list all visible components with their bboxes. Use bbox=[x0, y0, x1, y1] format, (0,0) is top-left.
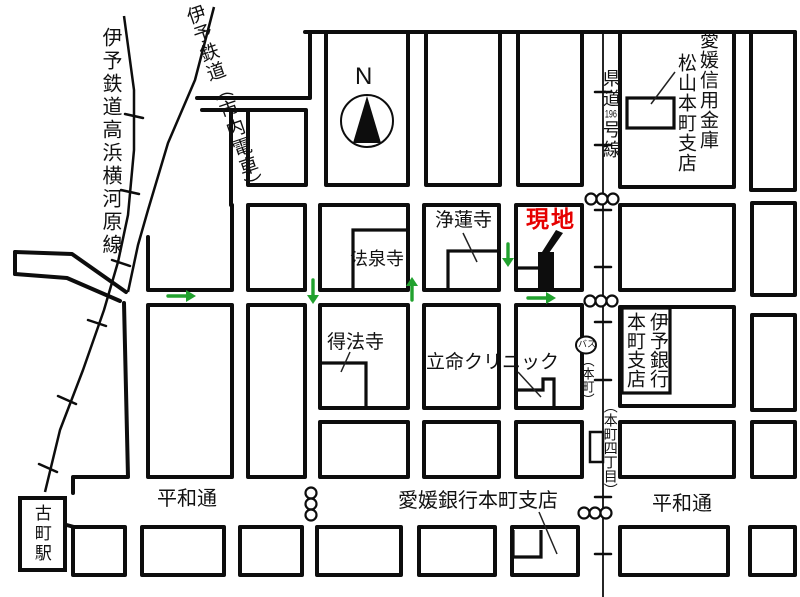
city-block bbox=[248, 205, 305, 290]
city-block bbox=[317, 527, 401, 575]
city-block bbox=[320, 205, 408, 290]
city-block bbox=[620, 527, 728, 575]
iyo-bank-label-line2: 本町支店 bbox=[624, 312, 644, 388]
city-block bbox=[751, 32, 795, 190]
ritsumei-clinic-label: 立命クリニック bbox=[426, 353, 559, 373]
west-road-upper-edge bbox=[15, 252, 126, 292]
city-block bbox=[752, 315, 795, 410]
green-arrow-down bbox=[307, 280, 319, 304]
route196-suffix: 号線 bbox=[601, 120, 621, 160]
route196-number: 196 bbox=[605, 109, 617, 120]
ehime-bank-label: 愛媛銀行本町支店 bbox=[398, 491, 558, 512]
green-arrow-down bbox=[502, 244, 514, 267]
signal-cluster-vertical bbox=[306, 488, 317, 521]
takahama-line-label: 伊予鉄道高浜横河原線 bbox=[99, 27, 120, 257]
compass-north-label: N bbox=[355, 64, 372, 89]
jorenji-label: 浄蓮寺 bbox=[435, 211, 492, 231]
city-block bbox=[73, 527, 125, 575]
heiwa-street-label-left: 平和通 bbox=[157, 489, 217, 510]
city-block bbox=[750, 527, 795, 575]
city-block bbox=[516, 422, 582, 477]
bus-stop-name-label: （本町） bbox=[580, 354, 594, 406]
heiwa-street-label-right: 平和通 bbox=[652, 494, 712, 515]
honmachi-4chome-label: （本町四丁目） bbox=[603, 399, 618, 497]
site-label: 現地 bbox=[526, 207, 576, 231]
street-map: 伊予鉄道高浜横河原線 伊予鉄道（市内電車） N 県道196号線 愛媛信用金庫 松… bbox=[0, 0, 800, 597]
city-block bbox=[419, 527, 495, 575]
city-block bbox=[752, 203, 795, 295]
city-block bbox=[518, 32, 582, 185]
west-wedge-block-edge bbox=[73, 303, 128, 493]
city-block bbox=[248, 305, 305, 477]
hosenji-label: 法泉寺 bbox=[350, 250, 404, 269]
tokuhoji-label: 得法寺 bbox=[327, 333, 384, 353]
site-building-marker bbox=[538, 252, 554, 292]
route196-prefix: 県道 bbox=[601, 69, 621, 109]
green-arrow-right bbox=[528, 292, 556, 304]
city-block bbox=[620, 422, 734, 477]
city-block bbox=[148, 305, 232, 477]
komachi-station-label: 古町駅 bbox=[32, 504, 50, 564]
city-block bbox=[512, 527, 578, 575]
ehime-shinkin-label-line2: 松山本町支店 bbox=[675, 53, 695, 173]
ehime-shinkin-label-line1: 愛媛信用金庫 bbox=[697, 30, 717, 150]
city-block bbox=[320, 305, 408, 408]
city-block bbox=[320, 422, 408, 477]
signal-cluster bbox=[586, 194, 619, 205]
city-block bbox=[148, 205, 232, 290]
signal-cluster bbox=[585, 296, 618, 307]
city-block bbox=[426, 32, 500, 185]
iyo-bank-label-line1: 伊予銀行 bbox=[647, 312, 667, 388]
route196-label: 県道196号線 bbox=[601, 69, 620, 160]
city-block bbox=[752, 422, 795, 477]
city-block bbox=[240, 527, 302, 575]
city-block bbox=[620, 205, 734, 290]
bus-mark-label: バス bbox=[578, 340, 596, 349]
city-block bbox=[424, 422, 499, 477]
tram-platform bbox=[590, 432, 603, 462]
signal-cluster bbox=[579, 508, 612, 519]
city-block bbox=[142, 527, 224, 575]
